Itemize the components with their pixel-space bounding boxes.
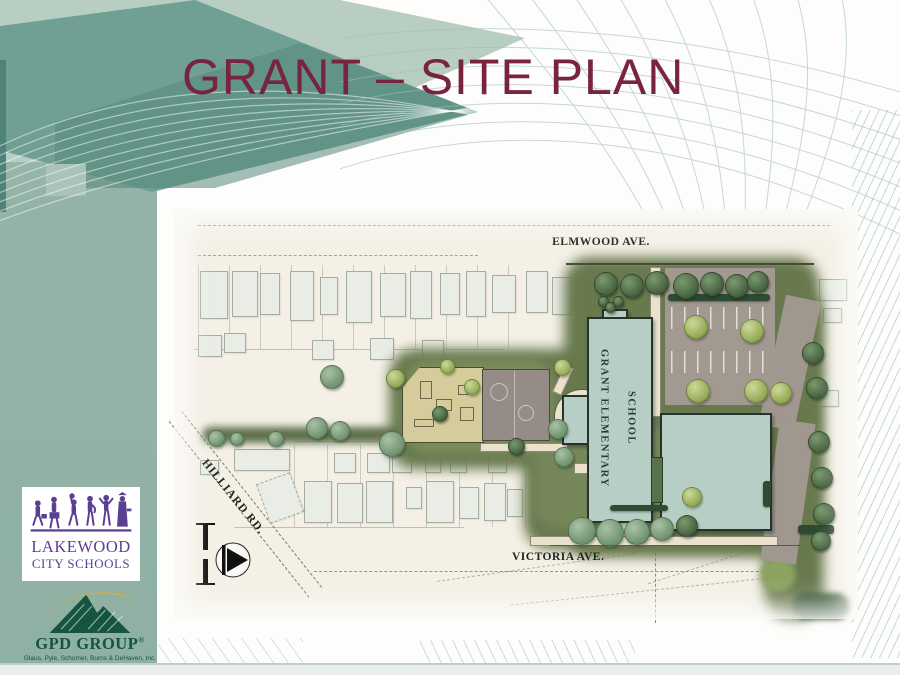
house: [507, 489, 523, 517]
house: [346, 271, 372, 323]
tree: [744, 379, 768, 403]
school-building-label: GRANT ELEMENTARY SCHOOL: [590, 327, 645, 509]
tree: [268, 431, 284, 447]
tree: [440, 359, 455, 374]
tree: [508, 438, 525, 455]
house: [304, 481, 332, 523]
street-edge-elmwood: [566, 263, 814, 265]
tree: [725, 274, 749, 298]
tree: [811, 531, 831, 551]
house: [224, 333, 246, 353]
slide: GRANT – SITE PLAN: [0, 0, 900, 675]
lakewood-logo-line2: CITY SCHOOLS: [32, 556, 130, 572]
parking-stalls: [671, 351, 771, 373]
tree: [747, 271, 769, 293]
dimension-line: [198, 225, 830, 226]
house: [198, 335, 222, 357]
tree: [700, 272, 724, 296]
tree: [802, 342, 824, 364]
gpd-mountain-icon: [42, 584, 138, 636]
hedge: [763, 481, 771, 507]
lot-line: [655, 553, 656, 623]
tree: [230, 432, 244, 446]
children-figures-icon: [27, 490, 135, 538]
tree: [330, 421, 350, 441]
house: [380, 273, 406, 317]
tree: [624, 519, 650, 545]
house: [484, 483, 506, 521]
tree: [594, 272, 618, 296]
contour-line: [511, 577, 770, 605]
tree: [813, 503, 835, 525]
tree: [645, 271, 669, 295]
tree: [554, 359, 571, 376]
house: [260, 273, 280, 315]
house: [232, 271, 258, 317]
house: [440, 273, 460, 315]
dimension-line: [198, 255, 478, 256]
house: [526, 271, 548, 313]
house: [823, 308, 842, 323]
tree: [208, 430, 225, 447]
tree: [811, 467, 833, 489]
tree: [673, 273, 699, 299]
tree: [808, 431, 830, 453]
tree: [684, 315, 708, 339]
tree: [676, 515, 698, 537]
dimension-line: [314, 571, 814, 572]
house: [290, 271, 314, 321]
tree: [568, 517, 596, 545]
bush-mass-se: [792, 593, 850, 619]
house: [334, 453, 356, 473]
lakewood-logo-line1: LAKEWOOD: [31, 538, 130, 556]
tree: [650, 517, 674, 541]
tree: [548, 419, 568, 439]
house: [200, 271, 228, 319]
tree: [464, 379, 480, 395]
tree: [379, 431, 405, 457]
bottom-strip: [0, 665, 900, 675]
house: [320, 277, 338, 315]
tree: [770, 382, 792, 404]
tree: [596, 519, 624, 547]
house: [492, 275, 516, 313]
house: [426, 481, 454, 523]
tree: [320, 365, 344, 389]
house: [819, 279, 847, 301]
north-arrow-icon: [210, 537, 256, 583]
right-edge-hatch: [852, 110, 900, 658]
tree: [682, 487, 702, 507]
house: [406, 487, 422, 509]
house: [466, 271, 486, 317]
lakewood-city-schools-logo: LAKEWOOD CITY SCHOOLS: [22, 487, 140, 581]
tree: [620, 274, 644, 298]
gpd-logo-name: GPD GROUP®: [35, 636, 145, 653]
tree: [386, 369, 405, 388]
bottom-hatch-left: [158, 638, 303, 666]
site-plan: GRANT ELEMENTARY SCHOOL: [174, 209, 858, 619]
house: [366, 481, 393, 523]
street-label-elmwood: ELMWOOD AVE.: [526, 236, 676, 248]
street-edge-victoria: [550, 545, 800, 546]
slide-title: GRANT – SITE PLAN: [182, 48, 684, 106]
house: [312, 340, 334, 360]
tree: [740, 319, 764, 343]
school-gym-building: [660, 413, 772, 531]
house: [337, 483, 363, 523]
house: [370, 338, 394, 360]
street-label-victoria: VICTORIA AVE.: [512, 551, 604, 563]
tree: [306, 417, 328, 439]
bush: [613, 296, 624, 307]
tree: [432, 406, 448, 422]
house: [410, 271, 432, 319]
house: [234, 449, 290, 471]
registered-mark: ®: [138, 636, 144, 645]
house: [459, 487, 479, 519]
tree: [554, 447, 574, 467]
courtyard-slot: [651, 457, 663, 503]
basketball-court: [482, 369, 550, 441]
gpd-group-logo: GPD GROUP® Glaus, Pyle, Schomer, Burns &…: [12, 584, 168, 662]
tree: [806, 377, 828, 399]
gpd-logo-tagline: Glaus, Pyle, Schomer, Burns & DeHaven, I…: [24, 655, 156, 662]
tree: [686, 379, 710, 403]
